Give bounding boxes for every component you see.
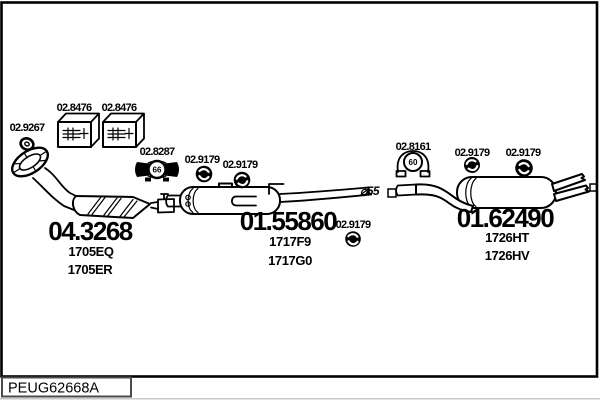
hanger-mid-1-ref-label: 02.9179 [185,154,220,166]
catalyst-variant-2-label: 1705ER [68,262,114,277]
pipe-diameter-label: ⌀55 [360,184,380,198]
clamp-60-size-label: 60 [409,158,418,167]
centre-silencer-variant-1-label: 1717F9 [269,234,311,249]
rear-silencer-variant-1-label: 1726HT [485,230,529,245]
clamp-kit-box-icon-right [103,114,144,148]
intermediate-pipe-drawing [280,188,371,203]
diagram-code-label: PEUG62668A [8,381,99,397]
hanger-rear-2-ref-label: 02.9179 [506,147,541,159]
clamp-60-icon: 60 [397,151,430,177]
exhaust-parts-diagram: 66 60 02.9267 02.8476 02.8476 02.8287 02… [0,0,600,400]
rubber-hanger-icon-1 [194,164,214,184]
catalytic-converter-drawing [73,196,150,218]
diagram-code-cell: PEUG62668A [2,378,131,397]
hanger-mid-3-ref-label: 02.9179 [336,219,371,231]
rear-silencer-variant-2-label: 1726HV [485,248,530,263]
clamp-66-ref-label: 02.8287 [140,146,175,158]
clamp-kit-box-icon-left [58,114,99,148]
diagram-canvas: 66 60 02.9267 02.8476 02.8476 02.8287 02… [0,0,600,400]
cat-outlet-sleeve-drawing [151,194,174,213]
clamp-66-size-label: 66 [153,166,162,175]
rubber-hanger-icon-3 [344,230,362,248]
pipe-break-symbol [388,189,396,197]
clamp-kit-left-ref-label: 02.8476 [57,102,92,114]
catalyst-variant-1-label: 1705EQ [68,244,114,259]
tailpipe-end-symbol [590,184,597,191]
hanger-mid-2-ref-label: 02.9179 [223,159,258,171]
hanger-rear-1-ref-label: 02.9179 [455,147,490,159]
clamp-kit-right-ref-label: 02.8476 [102,102,137,114]
centre-silencer-variant-2-label: 1717G0 [268,253,312,268]
rear-silencer-ref-label: 01.62490 [457,203,554,233]
catalyst-ref-label: 04.3268 [48,216,133,246]
rubber-hanger-icon-5 [513,157,534,178]
clamp-66-icon: 66 [135,161,179,182]
gasket-ref-label: 02.9267 [10,122,45,134]
centre-silencer-ref-label: 01.55860 [240,206,337,236]
clamp-60-ref-label: 02.8161 [396,141,431,153]
